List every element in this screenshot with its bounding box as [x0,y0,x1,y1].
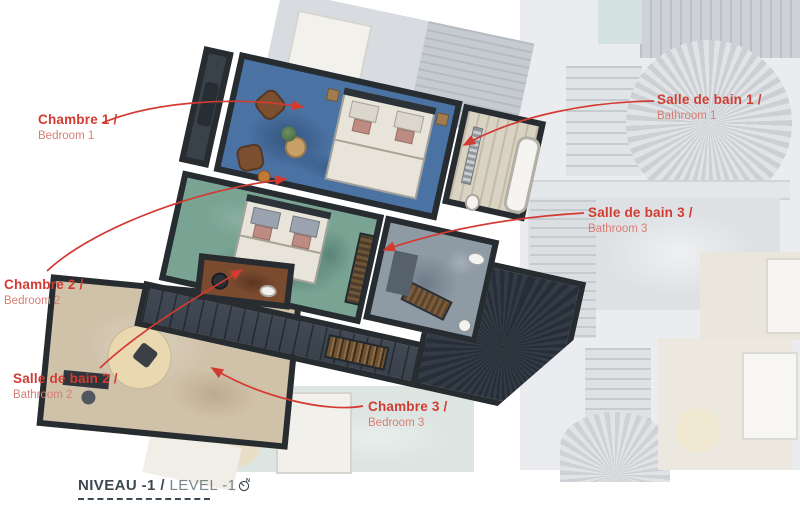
pouf-icon [235,142,266,173]
bg-room [598,0,642,44]
label-subtitle: Bathroom 3 [588,222,693,236]
label-salle-de-bain-3: Salle de bain 3 / Bathroom 3 [588,205,693,236]
label-subtitle: Bathroom 2 [13,388,118,402]
pouf-icon [252,87,289,124]
level-title-en: LEVEL -1 [170,477,237,494]
label-title: Salle de bain 2 / [13,371,118,388]
cushion-icon [394,128,414,145]
floor-plan-page: Chambre 1 / Bedroom 1 Salle de bain 1 / … [0,0,800,513]
nightstand-icon [326,88,340,102]
nightstand-icon [435,112,449,126]
level-title: NIVEAU -1 / LEVEL -1 N [78,477,254,494]
label-salle-de-bain-2: Salle de bain 2 / Bathroom 2 [13,371,118,402]
label-title: Chambre 3 / [368,399,447,416]
sink-icon [259,284,277,298]
label-chambre-3: Chambre 3 / Bedroom 3 [368,399,447,430]
mirror-icon [210,272,229,291]
dashed-underline [78,498,210,500]
stool-icon [457,318,473,334]
label-title: Salle de bain 1 / [657,92,762,109]
label-subtitle: Bedroom 1 [38,129,117,143]
level-title-fr: NIVEAU -1 / [78,477,165,494]
level-title-block: NIVEAU -1 / LEVEL -1 N [78,477,254,500]
lounge-chair-icon [196,81,219,127]
label-title: Chambre 1 / [38,112,117,129]
cushion-icon [352,118,372,135]
bg-rug-icon [676,408,720,452]
label-subtitle: Bedroom 2 [4,294,83,308]
bookshelf-icon [324,334,390,371]
label-chambre-1: Chambre 1 / Bedroom 1 [38,112,117,143]
north-compass-icon: N [237,477,254,492]
bed-icon [324,88,436,200]
label-title: Salle de bain 3 / [588,205,693,222]
label-subtitle: Bedroom 3 [368,416,447,430]
radiator-icon [461,126,483,185]
bg-bed-icon [742,352,798,440]
label-chambre-2: Chambre 2 / Bedroom 2 [4,277,83,308]
bg-winder-stair-icon [560,412,670,482]
label-title: Chambre 2 / [4,277,83,294]
label-subtitle: Bathroom 1 [657,109,762,123]
bg-corridor [528,180,790,200]
label-salle-de-bain-1: Salle de bain 1 / Bathroom 1 [657,92,762,123]
sink-icon [465,250,487,268]
bg-bed-icon [766,258,800,334]
